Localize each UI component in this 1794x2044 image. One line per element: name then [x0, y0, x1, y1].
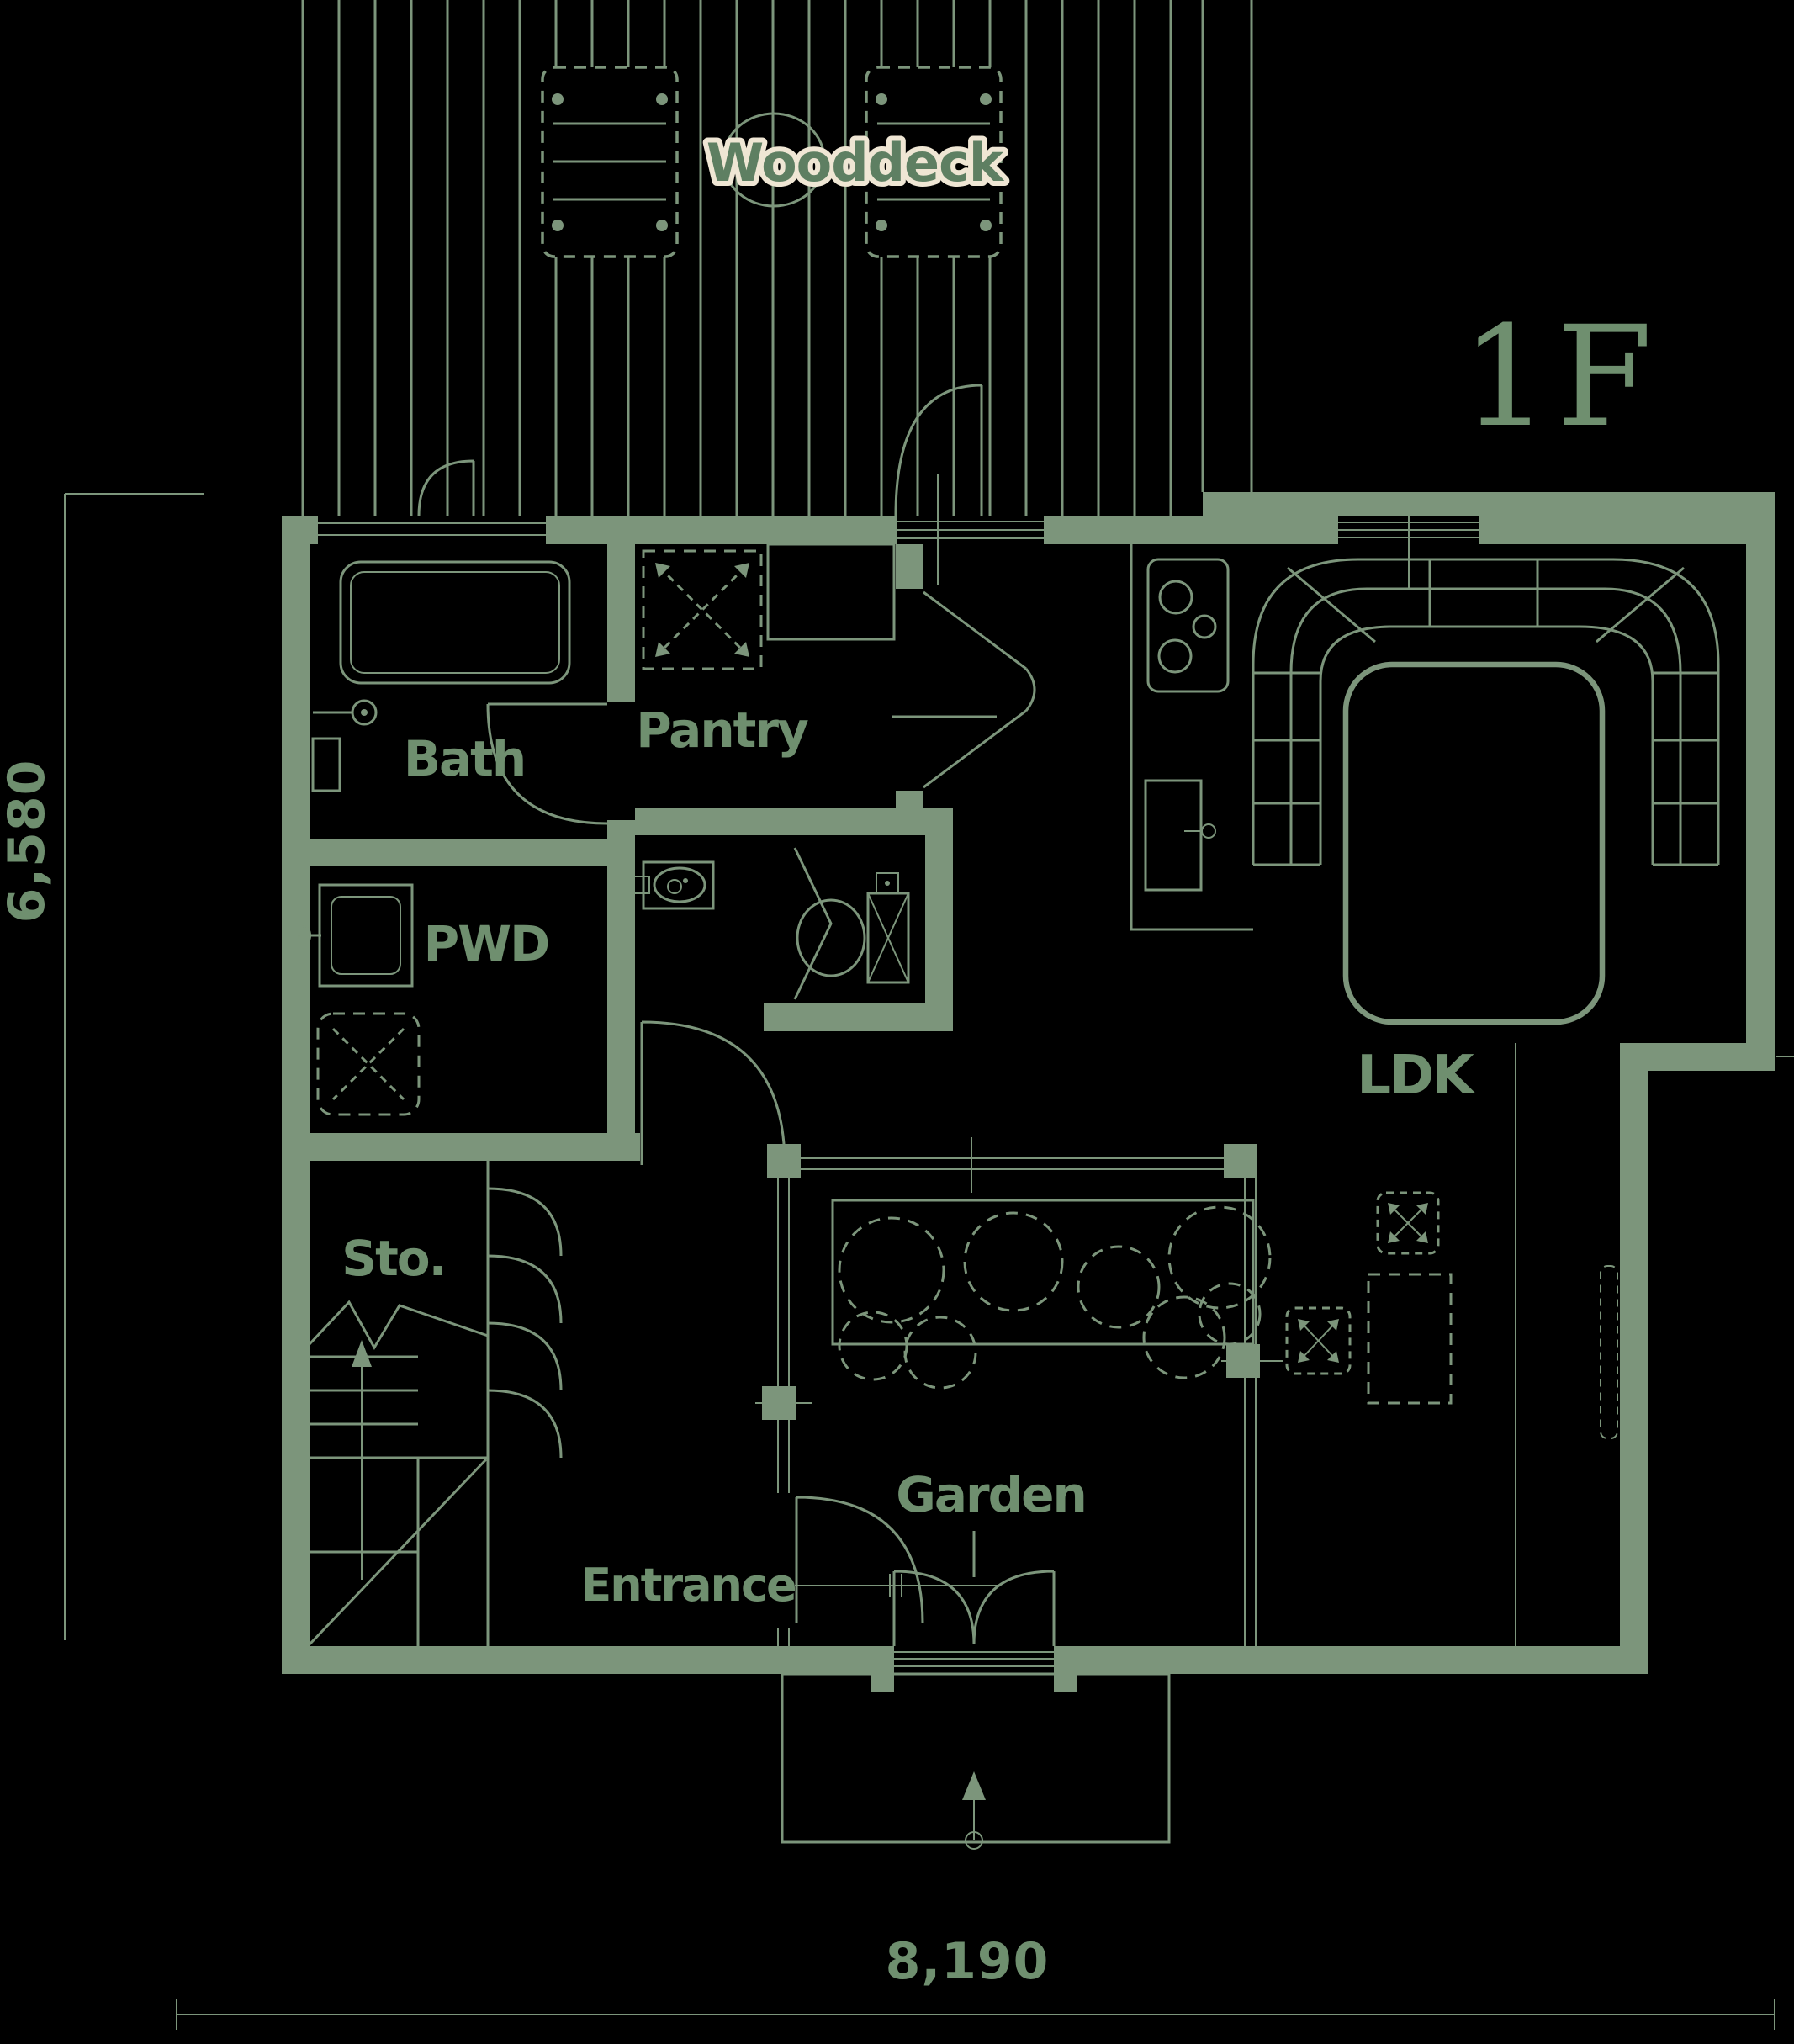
entry-jamb-left: [871, 1674, 894, 1692]
entrance-double-door: [894, 1531, 1054, 1646]
dining-table: [1346, 665, 1602, 1022]
ldk-area: LDK: [1253, 559, 1794, 1646]
bathtub: [341, 562, 569, 683]
wall-wc-south: [764, 1003, 953, 1031]
wall-right-upper: [1746, 516, 1775, 1043]
wall-right-jog: [1620, 1043, 1775, 1071]
wall-bath-east: [607, 543, 635, 1161]
entrance-label: Entrance: [580, 1559, 796, 1612]
wall-pwd-south: [310, 1133, 640, 1161]
low-table-dashed: [1368, 1274, 1451, 1403]
pwd-label: PWD: [424, 915, 549, 972]
washing-machine: [299, 885, 412, 986]
u-sofa: [1253, 559, 1718, 865]
dim-height-text: 6,580: [0, 760, 56, 924]
wall-bath-south: [310, 839, 607, 866]
hall-door: [642, 1022, 785, 1165]
dim-line-bottom: [177, 1999, 1775, 2030]
floor-plan-page: Wooddeck: [0, 0, 1794, 2044]
wooddeck-area: Wooddeck: [303, 0, 1252, 516]
wall-top-right: [1203, 492, 1775, 544]
wall-wc-east: [925, 808, 953, 1031]
storage-room: Sto.: [341, 1161, 488, 1646]
dimension-lines: 6,580 8,190: [0, 494, 1775, 2030]
pwd-room: PWD: [299, 885, 548, 1115]
entry-jamb-right: [1054, 1674, 1077, 1692]
floor-cushion: [1378, 1193, 1438, 1253]
bath-label: Bath: [404, 730, 525, 787]
pantry-room: Pantry: [636, 544, 997, 759]
pantry-label: Pantry: [636, 702, 808, 759]
bath-wall-unit: [313, 739, 340, 791]
ldk-label: LDK: [1357, 1045, 1476, 1107]
wall-left: [282, 516, 310, 1674]
pantry-hatch: [643, 551, 761, 669]
pantry-door-opening: [896, 589, 923, 791]
wall-right-lower: [1620, 1071, 1648, 1674]
entrance-door-opening: [894, 1646, 1054, 1674]
dim-width-text: 8,190: [886, 1932, 1050, 1991]
pantry-shelf: [768, 544, 894, 639]
floor-plan-drawing: Wooddeck: [0, 0, 1794, 2044]
bath-door-opening: [607, 702, 635, 820]
hall-washbasin: [634, 862, 713, 908]
staircase: [310, 1302, 488, 1646]
porch: [782, 1674, 1169, 1849]
entrance-area: Entrance: [580, 1559, 1001, 1612]
deck-slats: [303, 0, 1171, 516]
shower-icon: [313, 701, 376, 724]
curtain-dashed: [1601, 1266, 1617, 1438]
floor-tag: 1F: [1461, 296, 1659, 458]
garden-fence: [755, 1137, 1283, 1646]
wooddeck-label: Wooddeck: [706, 132, 1005, 193]
stair-break-line: [310, 1302, 488, 1348]
stove-icon: [1148, 559, 1228, 691]
kitchen-sink: [1146, 781, 1215, 890]
storage-label: Sto.: [341, 1230, 445, 1287]
dim-line-left: [65, 494, 204, 1640]
bath-room: Bath: [313, 562, 569, 791]
kitchen: [1131, 544, 1253, 929]
entrance-leader-line: [795, 1574, 1001, 1597]
pantry-double-door: [923, 592, 1035, 787]
deck-edge: [1203, 0, 1252, 492]
garden-label: Garden: [896, 1466, 1086, 1523]
laundry-pan: [318, 1014, 419, 1115]
garden-area: Garden: [755, 1137, 1283, 1646]
bath-window: [317, 516, 547, 544]
planter: [833, 1200, 1270, 1388]
deck-lounge-chair: [542, 67, 677, 257]
floor-cushion: [1287, 1308, 1350, 1374]
storage-closet-doors: [488, 1189, 561, 1458]
